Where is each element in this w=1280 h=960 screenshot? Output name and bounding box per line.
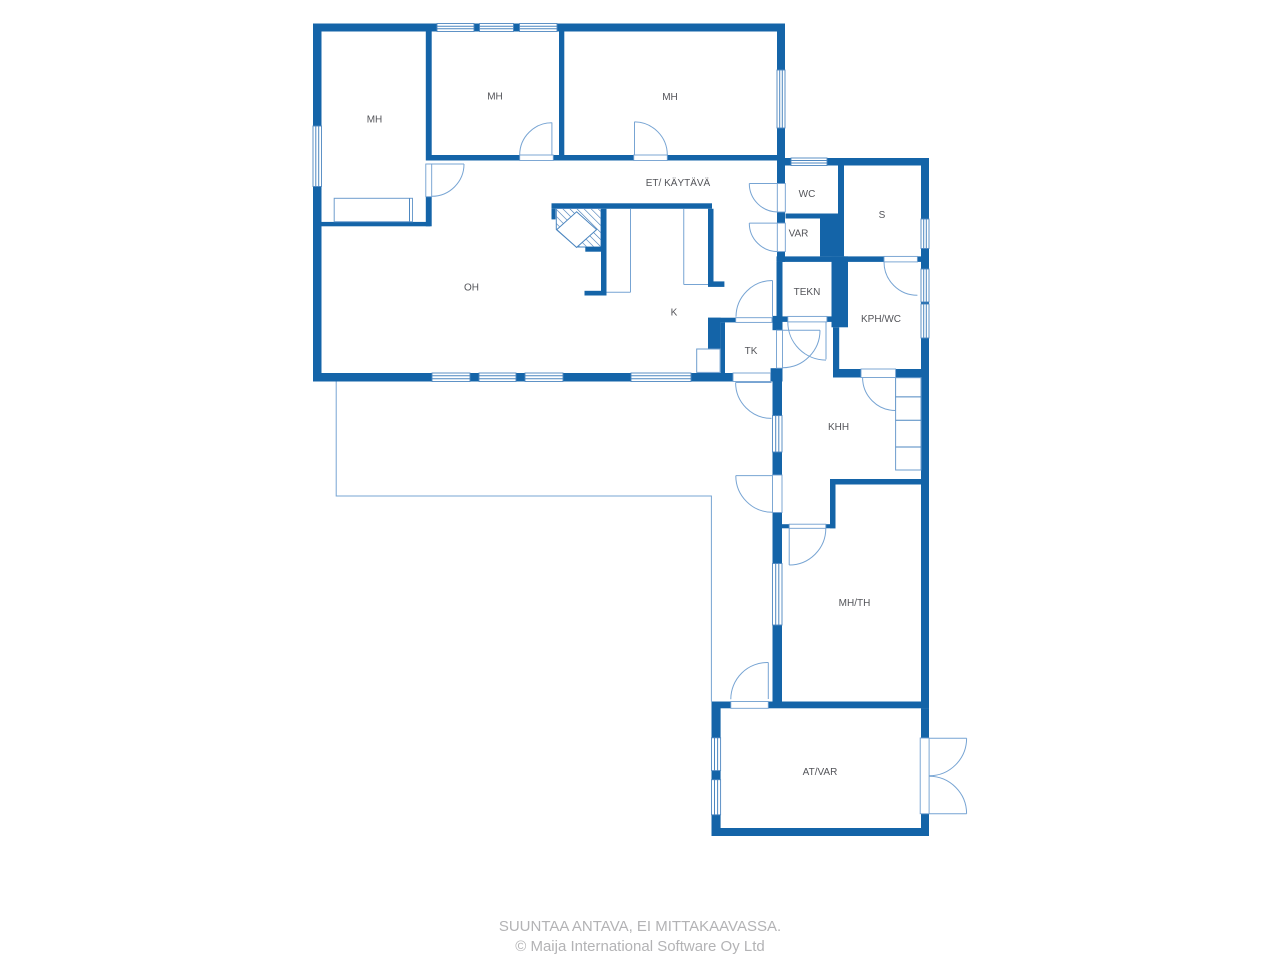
svg-text:VAR: VAR [789, 229, 809, 240]
svg-text:K: K [671, 308, 678, 319]
svg-text:© Maija International Software: © Maija International Software Oy Ltd [515, 938, 765, 955]
svg-text:KPH/WC: KPH/WC [861, 314, 901, 325]
svg-text:MH: MH [487, 92, 503, 103]
svg-text:OH: OH [464, 283, 479, 294]
svg-text:SUUNTAA ANTAVA, EI MITTAKAAVAS: SUUNTAA ANTAVA, EI MITTAKAAVASSA. [499, 918, 781, 935]
svg-text:MH: MH [367, 115, 383, 126]
svg-text:KHH: KHH [828, 422, 849, 433]
svg-text:S: S [879, 210, 886, 221]
svg-text:TEKN: TEKN [794, 287, 821, 298]
svg-text:WC: WC [799, 189, 816, 200]
svg-text:MH: MH [662, 92, 678, 103]
svg-text:MH/TH: MH/TH [839, 598, 871, 609]
svg-text:TK: TK [745, 346, 758, 357]
svg-text:ET/ KÄYTÄVÄ: ET/ KÄYTÄVÄ [646, 177, 711, 189]
svg-text:AT/VAR: AT/VAR [803, 767, 838, 778]
